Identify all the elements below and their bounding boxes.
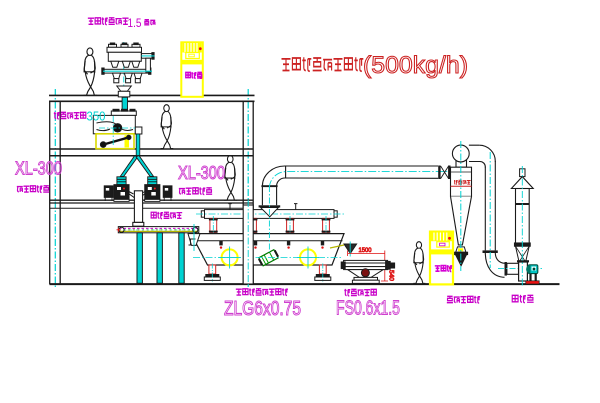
svg-text:XL-300: XL-300 <box>15 159 62 179</box>
svg-text:1500: 1500 <box>359 247 372 254</box>
svg-text:ZLG6x0.75: ZLG6x0.75 <box>224 297 301 320</box>
svg-text:XL-300: XL-300 <box>178 163 225 183</box>
svg-text:350: 350 <box>87 110 106 124</box>
svg-text:540: 540 <box>388 270 395 281</box>
svg-text:(500kg/h): (500kg/h) <box>363 52 468 79</box>
svg-text:FS0.6x1.5: FS0.6x1.5 <box>336 297 400 320</box>
svg-text:1.5: 1.5 <box>128 18 142 30</box>
